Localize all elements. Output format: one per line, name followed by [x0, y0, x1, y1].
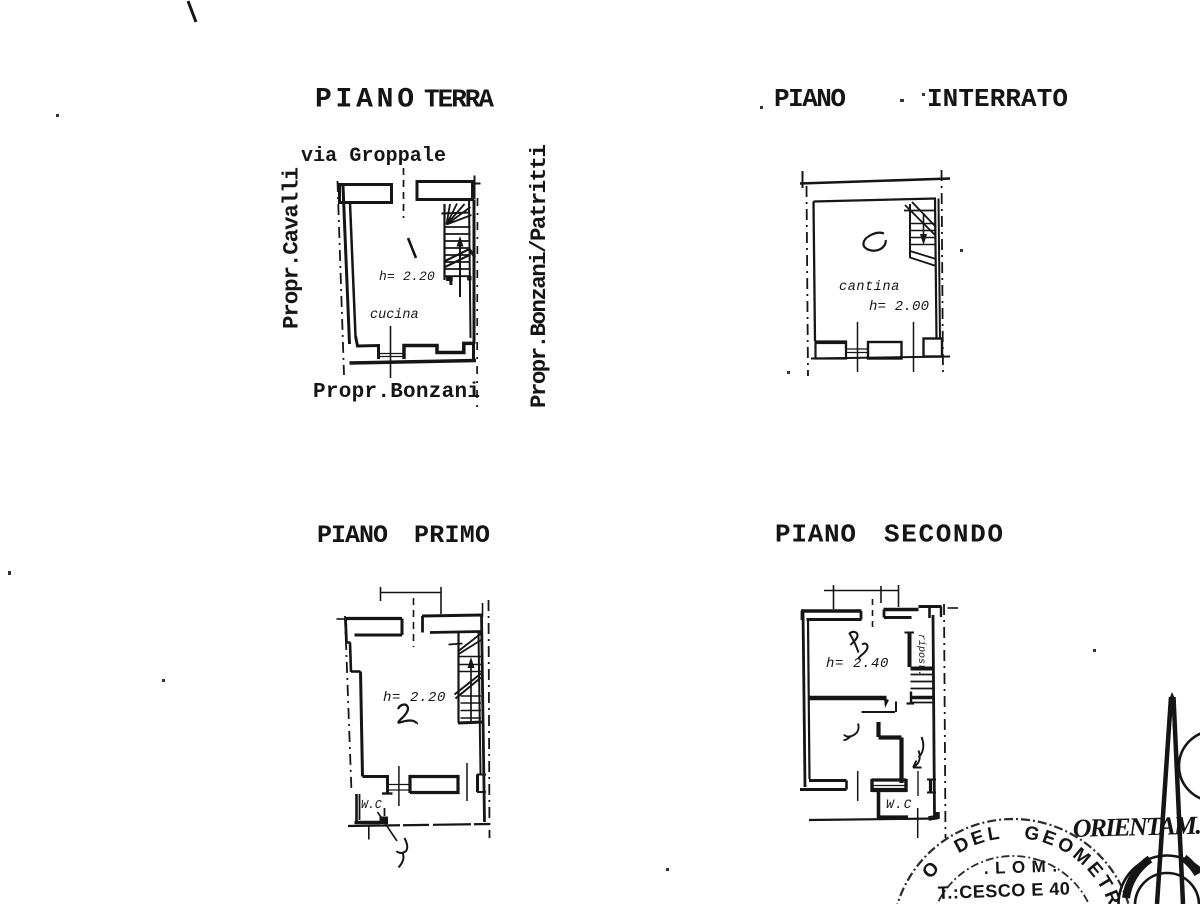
svg-text:PIANO: PIANO — [775, 520, 856, 550]
svg-text:PIANO: PIANO — [774, 84, 846, 114]
svg-text:cantina: cantina — [839, 280, 900, 295]
svg-text:INTERRATO: INTERRATO — [927, 84, 1068, 114]
svg-text:h= 2.00: h= 2.00 — [869, 299, 929, 315]
svg-text:via Groppale: via Groppale — [301, 145, 446, 168]
svg-text:h= 2.20: h= 2.20 — [383, 690, 446, 706]
svg-text:PIANO: PIANO — [317, 521, 388, 550]
svg-text:W.C: W.C — [361, 799, 382, 812]
svg-text:PRIMO: PRIMO — [414, 521, 490, 550]
svg-text:ripost.: ripost. — [915, 634, 927, 676]
svg-text:.LOM.: .LOM. — [983, 856, 1063, 878]
svg-text:cucina: cucina — [370, 308, 419, 323]
svg-text:Propr.Bonzani/Patritti: Propr.Bonzani/Patritti — [526, 144, 552, 408]
svg-text:Propr.Cavalli: Propr.Cavalli — [279, 167, 305, 329]
svg-text:Propr.Bonzani: Propr.Bonzani — [313, 381, 480, 404]
svg-text:h= 2.40: h= 2.40 — [826, 656, 889, 672]
svg-text:TERRA: TERRA — [424, 85, 494, 115]
svg-text:PIANO: PIANO — [315, 85, 414, 116]
svg-text:W.C: W.C — [886, 797, 912, 812]
svg-text:SECONDO: SECONDO — [884, 520, 1003, 550]
svg-text:h= 2.20: h= 2.20 — [379, 269, 435, 284]
